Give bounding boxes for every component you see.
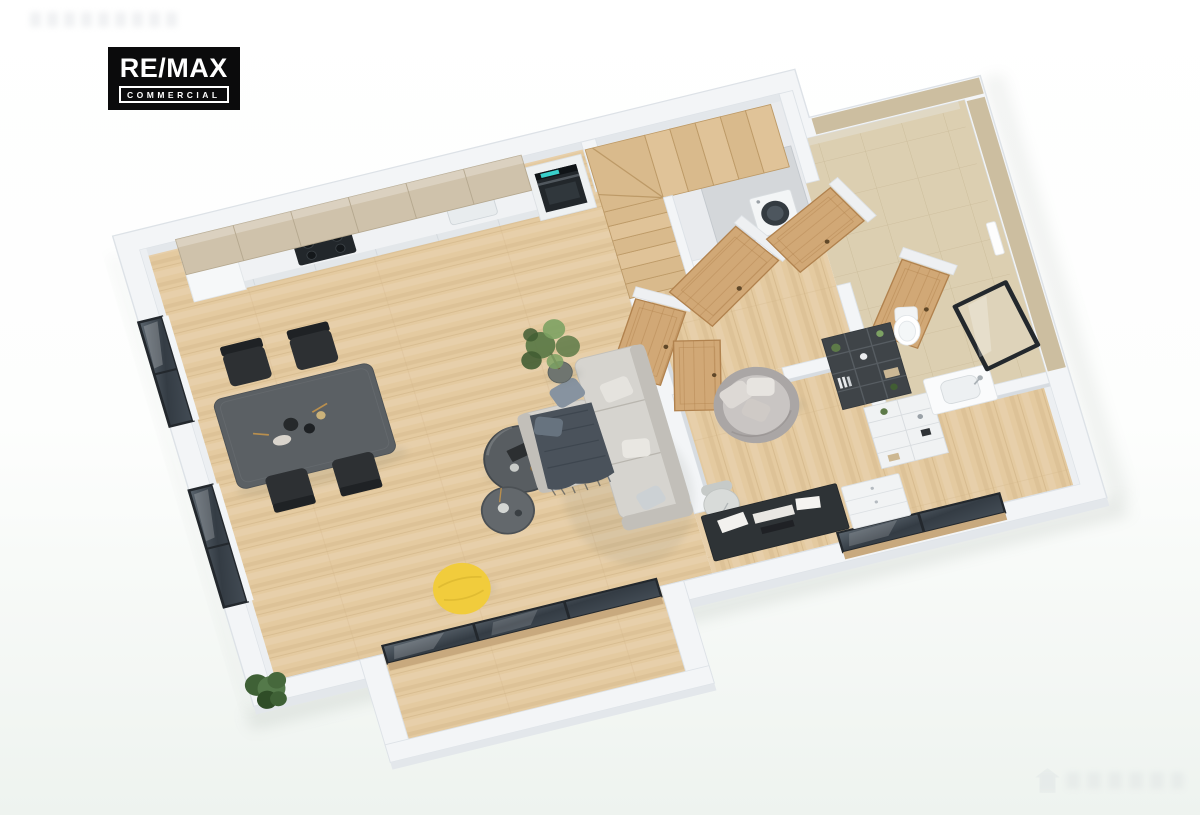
floor-plan-render: RE/MAX COMMERCIAL (0, 0, 1200, 815)
building (104, 22, 1156, 799)
remax-commercial-logo: RE/MAX COMMERCIAL (108, 47, 240, 110)
logo-brand-text: RE/MAX (120, 55, 228, 82)
logo-division-text: COMMERCIAL (119, 86, 229, 103)
toilet (893, 306, 921, 345)
floor-plan-svg (0, 0, 1200, 815)
